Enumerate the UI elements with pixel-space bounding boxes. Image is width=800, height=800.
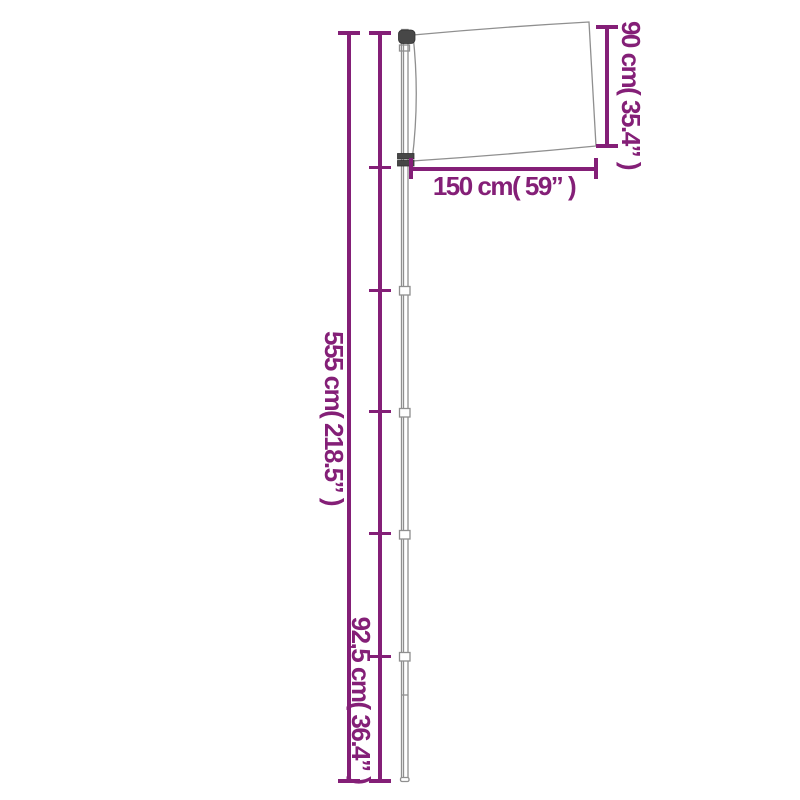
dimension-end-bar <box>596 25 618 29</box>
pole <box>402 30 409 781</box>
dimension-end-bar <box>369 31 391 35</box>
dimension-stem <box>605 25 609 148</box>
segment-tick <box>369 166 391 169</box>
segment-tick <box>369 410 391 413</box>
pole-joint-collar <box>400 409 411 418</box>
pole-bottom-cap <box>401 778 410 782</box>
segment-tick <box>369 532 391 535</box>
pole-joint-collar <box>400 653 411 662</box>
dimension-end-bar <box>594 158 598 179</box>
dimension-stem <box>378 31 382 783</box>
pole-finial <box>399 30 416 44</box>
bottom-segment-label: 92,5 cm( 36.4” ) <box>348 617 374 784</box>
flagpole-artwork <box>0 0 800 800</box>
flag-outline <box>412 22 596 161</box>
dimension-end-bar <box>596 144 618 148</box>
segment-tick <box>369 289 391 292</box>
pole-joint-collar <box>400 287 411 296</box>
flag-width-label: 150 cm( 59” ) <box>433 173 575 199</box>
pole-height-label: 555 cm( 218.5” ) <box>321 331 347 505</box>
product-dimension-diagram: 555 cm( 218.5” ) 92,5 cm( 36.4” ) 90 cm(… <box>0 0 800 800</box>
dimension-end-bar <box>409 158 413 179</box>
flag-height-label: 90 cm( 35.4” ) <box>618 21 644 169</box>
pole-joint-collar <box>400 531 411 540</box>
dimension-end-bar <box>338 31 360 35</box>
